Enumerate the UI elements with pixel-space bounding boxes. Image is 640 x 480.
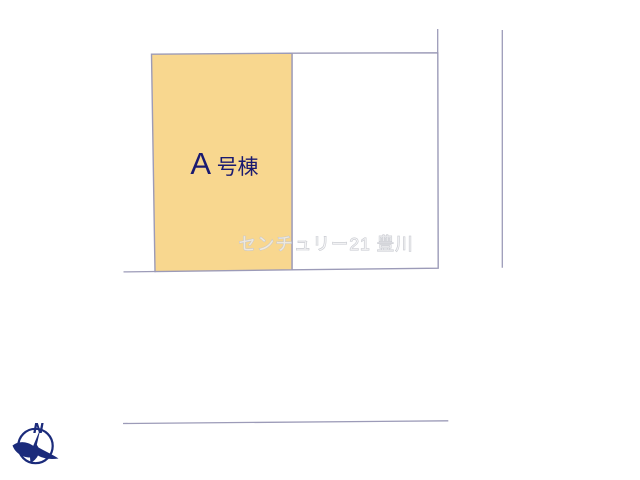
north-compass-icon: N bbox=[13, 422, 59, 463]
watermark-text: センチュリー21 豊川 bbox=[238, 234, 413, 254]
lot-a-label-suffix: 号棟 bbox=[217, 156, 259, 179]
lot-a-label-prefix: A bbox=[190, 146, 211, 181]
boundary-line-bottom bbox=[123, 421, 448, 424]
compass-north-label: N bbox=[33, 422, 44, 437]
site-plan-canvas: A 号棟 センチュリー21 豊川 N bbox=[0, 0, 640, 480]
site-plan: A 号棟 センチュリー21 豊川 N bbox=[0, 0, 640, 480]
